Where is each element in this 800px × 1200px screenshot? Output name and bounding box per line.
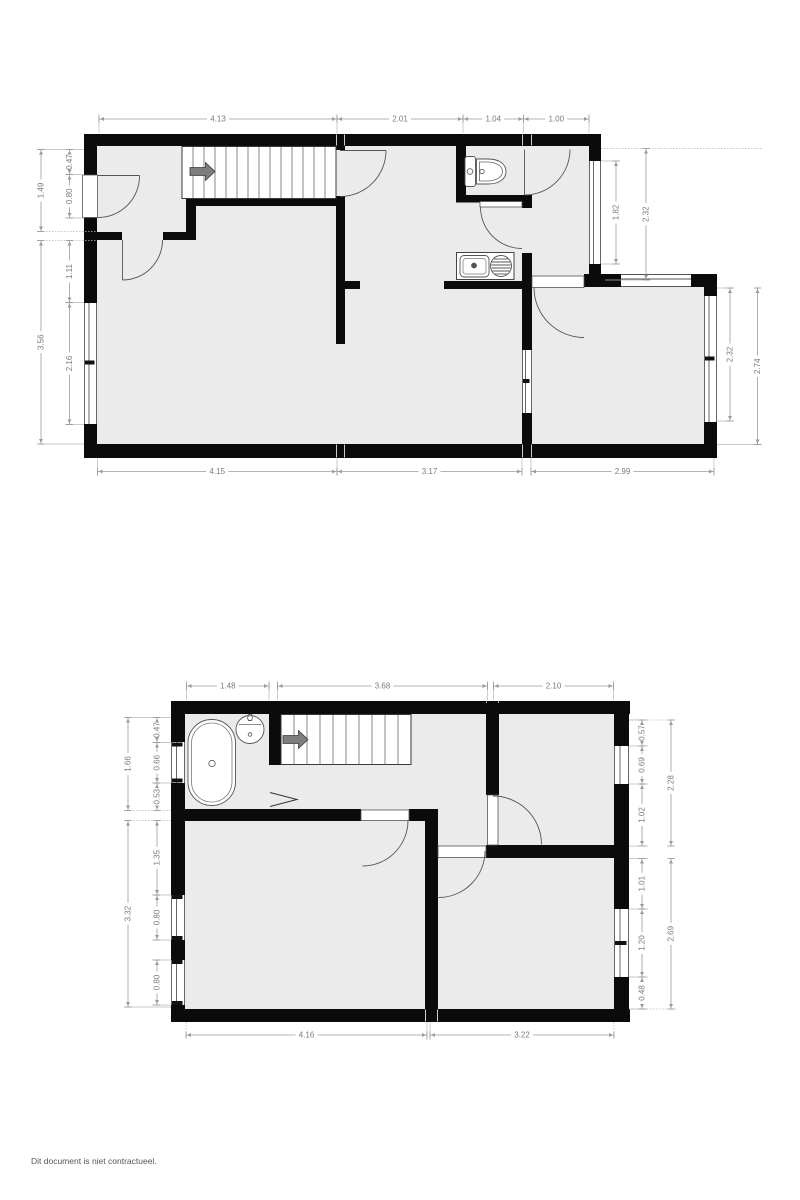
svg-text:Dit document is niet contractu: Dit document is niet contractueel. bbox=[31, 1156, 157, 1166]
svg-text:4.16: 4.16 bbox=[299, 1031, 315, 1040]
svg-text:1.01: 1.01 bbox=[638, 875, 647, 891]
svg-text:3.32: 3.32 bbox=[124, 905, 133, 921]
svg-text:0.80: 0.80 bbox=[153, 909, 162, 925]
svg-text:0.57: 0.57 bbox=[638, 725, 647, 741]
svg-text:2.10: 2.10 bbox=[546, 682, 562, 691]
svg-text:0.53: 0.53 bbox=[153, 788, 162, 804]
svg-text:1.02: 1.02 bbox=[638, 807, 647, 823]
svg-text:4.13: 4.13 bbox=[210, 115, 226, 124]
svg-text:1.66: 1.66 bbox=[124, 756, 133, 772]
svg-text:3.68: 3.68 bbox=[375, 682, 391, 691]
svg-text:3.17: 3.17 bbox=[422, 467, 438, 476]
svg-text:0.66: 0.66 bbox=[153, 754, 162, 770]
svg-text:2.28: 2.28 bbox=[667, 775, 676, 791]
svg-text:0.47: 0.47 bbox=[153, 722, 162, 738]
svg-text:4.15: 4.15 bbox=[209, 467, 225, 476]
svg-text:0.80: 0.80 bbox=[153, 974, 162, 990]
svg-text:0.48: 0.48 bbox=[638, 985, 647, 1001]
svg-text:1.04: 1.04 bbox=[485, 115, 501, 124]
svg-text:2.32: 2.32 bbox=[642, 206, 651, 222]
svg-text:0.47: 0.47 bbox=[65, 154, 74, 170]
svg-text:2.01: 2.01 bbox=[392, 115, 408, 124]
svg-text:0.80: 0.80 bbox=[65, 188, 74, 204]
svg-text:2.99: 2.99 bbox=[615, 467, 631, 476]
svg-text:2.74: 2.74 bbox=[753, 358, 762, 374]
svg-text:1.11: 1.11 bbox=[65, 263, 74, 279]
svg-text:0.69: 0.69 bbox=[638, 757, 647, 773]
svg-text:2.32: 2.32 bbox=[726, 346, 735, 362]
svg-text:1.48: 1.48 bbox=[220, 682, 236, 691]
svg-text:3.56: 3.56 bbox=[37, 334, 46, 350]
svg-text:2.69: 2.69 bbox=[667, 925, 676, 941]
svg-text:1.82: 1.82 bbox=[612, 204, 621, 220]
svg-text:1.49: 1.49 bbox=[37, 182, 46, 198]
svg-text:1.20: 1.20 bbox=[638, 935, 647, 951]
svg-text:2.16: 2.16 bbox=[65, 355, 74, 371]
svg-text:1.35: 1.35 bbox=[153, 849, 162, 865]
svg-text:3.22: 3.22 bbox=[514, 1031, 530, 1040]
svg-text:1.00: 1.00 bbox=[548, 115, 564, 124]
